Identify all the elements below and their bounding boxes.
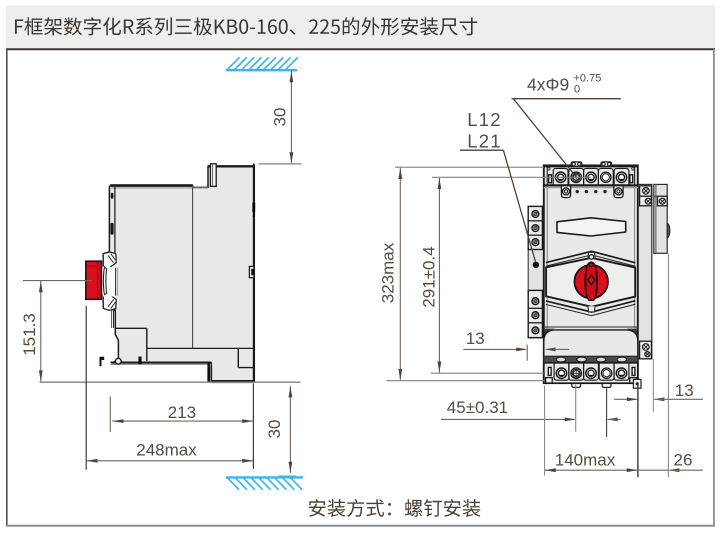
svg-text:L12: L12: [467, 109, 502, 130]
svg-text:13: 13: [675, 381, 694, 400]
svg-text:323max: 323max: [378, 242, 397, 303]
svg-text:30: 30: [271, 108, 290, 127]
svg-text:151.3: 151.3: [20, 313, 39, 356]
svg-text:140max: 140max: [555, 450, 616, 469]
svg-text:248max: 248max: [136, 440, 197, 459]
svg-text:0: 0: [574, 84, 580, 96]
svg-text:26: 26: [674, 450, 693, 469]
svg-text:291±0.4: 291±0.4: [420, 246, 439, 307]
svg-text:4xΦ9: 4xΦ9: [527, 75, 569, 95]
svg-text:L21: L21: [467, 130, 502, 151]
svg-text:30: 30: [265, 420, 284, 439]
svg-text:213: 213: [168, 403, 196, 422]
svg-text:13: 13: [466, 329, 485, 348]
svg-text:45±0.31: 45±0.31: [447, 398, 508, 417]
